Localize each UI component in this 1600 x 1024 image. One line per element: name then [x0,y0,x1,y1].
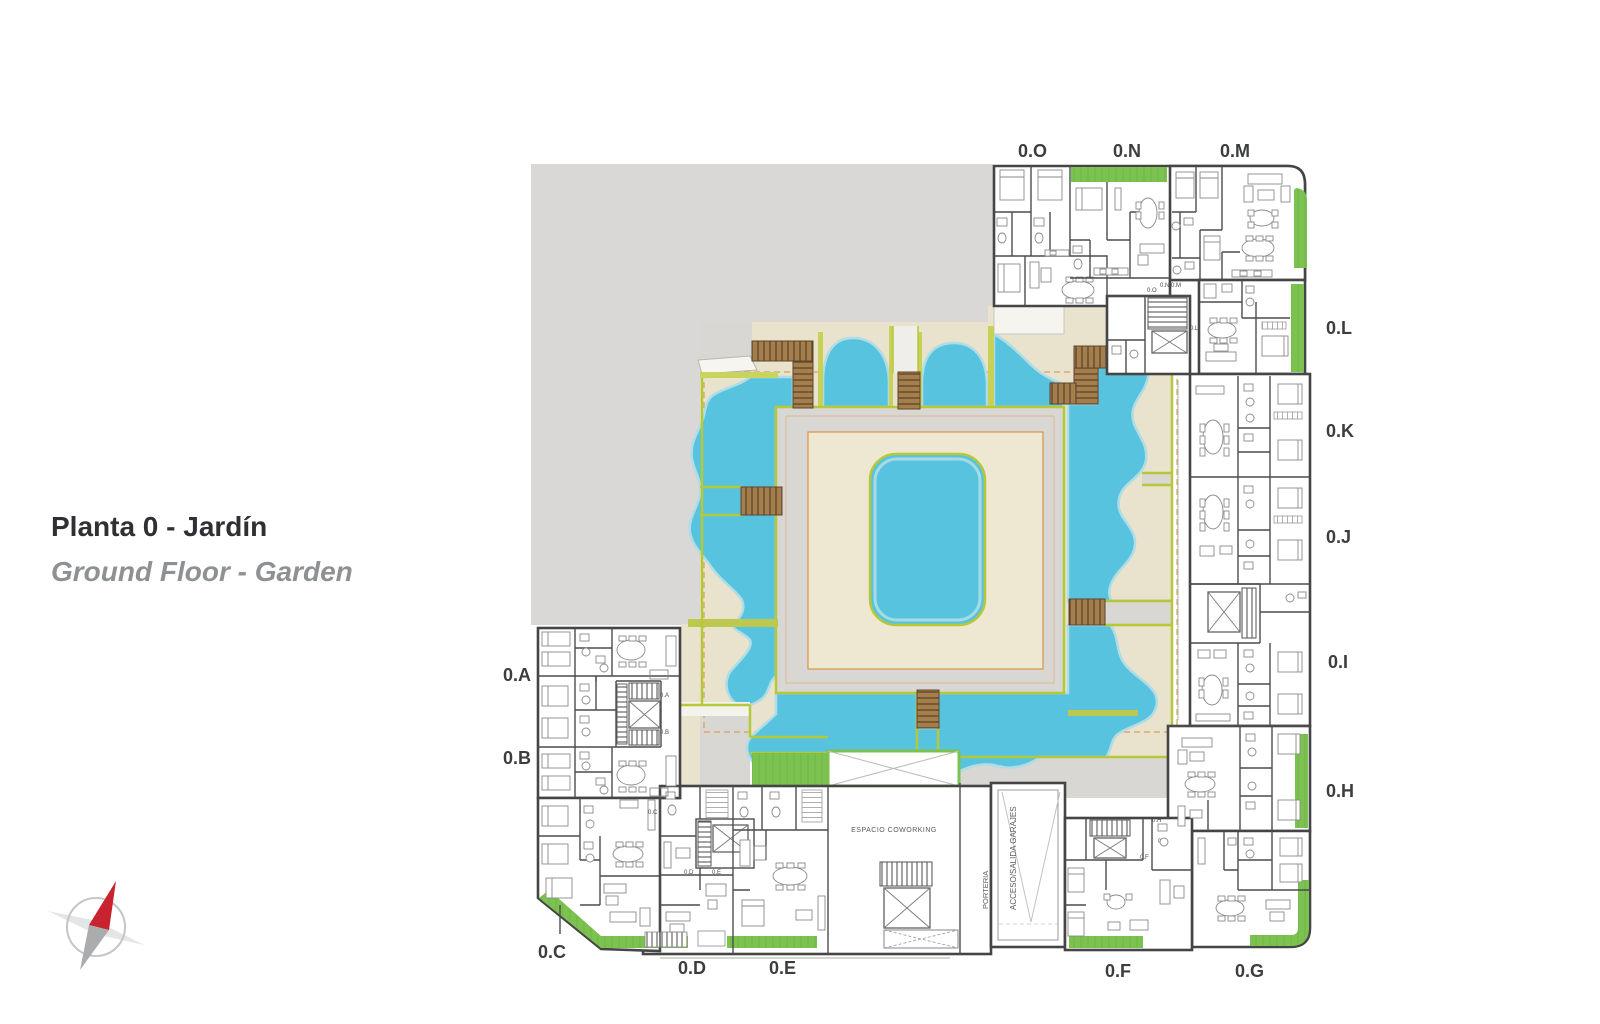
svg-text:0.O: 0.O [1018,141,1047,161]
svg-text:0.M: 0.M [1220,141,1250,161]
svg-text:0.F: 0.F [1105,961,1131,981]
svg-text:ACCESO/SALIDA GARAJES: ACCESO/SALIDA GARAJES [1009,806,1018,910]
svg-text:Planta 0 - Jardín: Planta 0 - Jardín [51,511,267,542]
svg-text:0.O: 0.O [1147,288,1157,294]
svg-text:0.L: 0.L [1190,326,1199,332]
svg-text:0.D: 0.D [678,958,706,978]
svg-text:PORTERIA: PORTERIA [981,871,990,909]
svg-text:0.H: 0.H [1326,781,1354,801]
svg-text:0.F: 0.F [1140,855,1149,861]
svg-text:0.H: 0.H [1152,818,1161,824]
svg-text:0.A: 0.A [503,665,531,685]
svg-text:0.N: 0.N [1113,141,1141,161]
svg-text:0.C: 0.C [648,810,658,816]
svg-text:0.I: 0.I [1328,652,1348,672]
svg-text:0.J: 0.J [1326,527,1351,547]
svg-text:0.C: 0.C [538,942,566,962]
svg-text:ESPACIO COWORKING: ESPACIO COWORKING [851,827,937,834]
svg-text:0.L: 0.L [1326,318,1352,338]
svg-text:0.G: 0.G [1235,961,1264,981]
svg-text:0.B: 0.B [503,748,531,768]
svg-text:0.D: 0.D [684,870,694,876]
svg-text:0.N 0.M: 0.N 0.M [1160,283,1181,289]
svg-text:0.E: 0.E [712,870,721,876]
svg-text:0.B: 0.B [660,730,669,736]
svg-text:Ground Floor - Garden: Ground Floor - Garden [51,556,353,587]
svg-text:0.E: 0.E [769,958,796,978]
svg-text:0.K: 0.K [1326,421,1354,441]
